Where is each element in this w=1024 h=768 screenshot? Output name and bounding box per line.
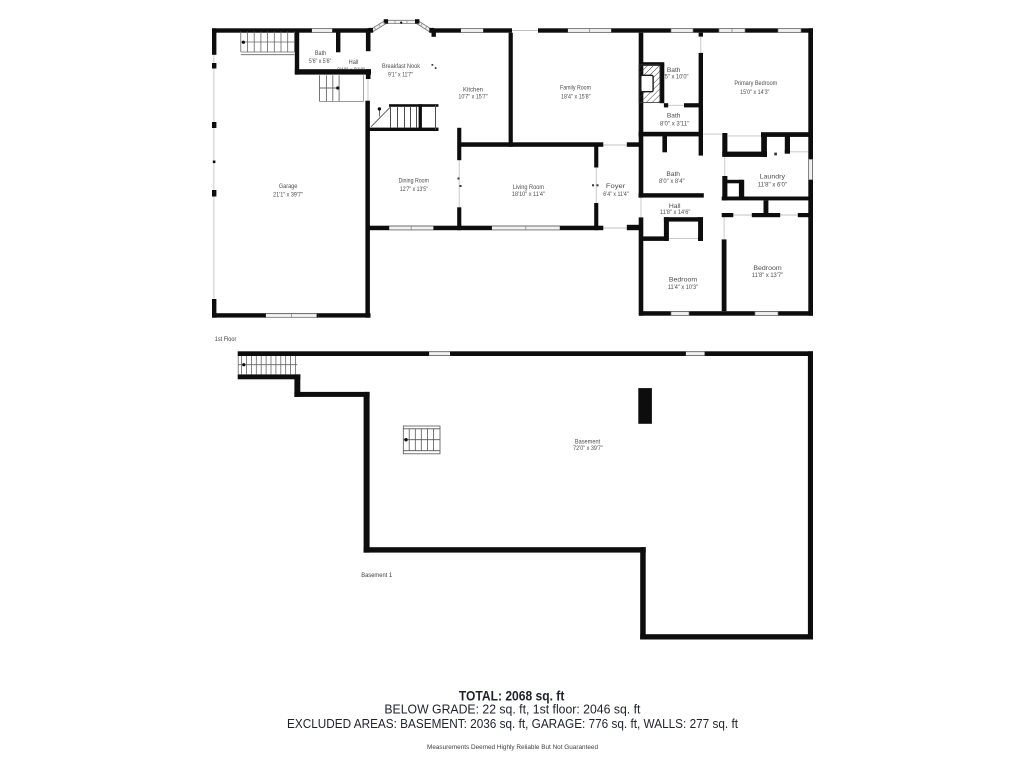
svg-text:Hall: Hall	[349, 59, 359, 66]
svg-text:11'8" x 14'6": 11'8" x 14'6"	[660, 209, 691, 216]
svg-text:8'0" x 8'4": 8'0" x 8'4"	[659, 178, 685, 185]
svg-text:Bath: Bath	[315, 50, 326, 57]
svg-text:Garage: Garage	[279, 183, 298, 190]
svg-text:3'5" x 10'0": 3'5" x 10'0"	[661, 74, 689, 81]
svg-text:Living Room: Living Room	[513, 184, 545, 191]
svg-text:BELOW GRADE: 22 sq. ft, 1st fl: BELOW GRADE: 22 sq. ft, 1st floor: 2046 …	[384, 703, 640, 717]
svg-text:Dining Room: Dining Room	[399, 178, 430, 185]
svg-text:10'7" x 15'7": 10'7" x 15'7"	[458, 94, 488, 101]
svg-text:Foyer: Foyer	[606, 183, 626, 190]
svg-text:11'8" x 6'0": 11'8" x 6'0"	[758, 182, 788, 189]
svg-text:Bedroom: Bedroom	[669, 277, 698, 284]
svg-text:Basement 1: Basement 1	[361, 572, 392, 579]
svg-text:EXCLUDED AREAS: BASEMENT: 2036: EXCLUDED AREAS: BASEMENT: 2036 sq. ft, G…	[287, 717, 738, 731]
svg-text:6'4" x 11'4": 6'4" x 11'4"	[603, 191, 629, 198]
svg-text:Kitchen: Kitchen	[463, 87, 483, 94]
svg-text:15'0" x 14'3": 15'0" x 14'3"	[740, 89, 770, 96]
svg-text:Breakfast Nook: Breakfast Nook	[382, 63, 420, 70]
svg-text:21'1" x 39'7": 21'1" x 39'7"	[273, 192, 303, 199]
svg-text:8'0" x 3'11": 8'0" x 3'11"	[660, 121, 690, 128]
svg-text:5'6" x 5'6": 5'6" x 5'6"	[309, 58, 332, 65]
svg-text:Measurements Deemed Highly Rel: Measurements Deemed Highly Reliable But …	[427, 744, 598, 751]
svg-text:72'0" x 39'7": 72'0" x 39'7"	[573, 445, 603, 452]
svg-text:18'4" x 15'8": 18'4" x 15'8"	[561, 94, 591, 101]
svg-text:Bath: Bath	[666, 171, 680, 178]
svg-text:11'4" x 10'3": 11'4" x 10'3"	[668, 284, 699, 291]
svg-text:9'1" x 11'7": 9'1" x 11'7"	[388, 71, 413, 78]
svg-text:Primary Bedroom: Primary Bedroom	[734, 80, 777, 87]
svg-text:Bath: Bath	[667, 113, 681, 120]
svg-text:TOTAL: 2068 sq. ft: TOTAL: 2068 sq. ft	[459, 688, 565, 703]
svg-text:Bedroom: Bedroom	[753, 265, 782, 272]
svg-text:12'7" x 13'5": 12'7" x 13'5"	[400, 186, 429, 193]
svg-text:Family Room: Family Room	[560, 85, 591, 92]
svg-text:18'10" x 11'4": 18'10" x 11'4"	[512, 191, 545, 198]
svg-text:1st Floor: 1st Floor	[215, 336, 237, 343]
svg-text:Laundry: Laundry	[760, 174, 786, 181]
svg-text:11'8" x 13'7": 11'8" x 13'7"	[752, 272, 784, 279]
